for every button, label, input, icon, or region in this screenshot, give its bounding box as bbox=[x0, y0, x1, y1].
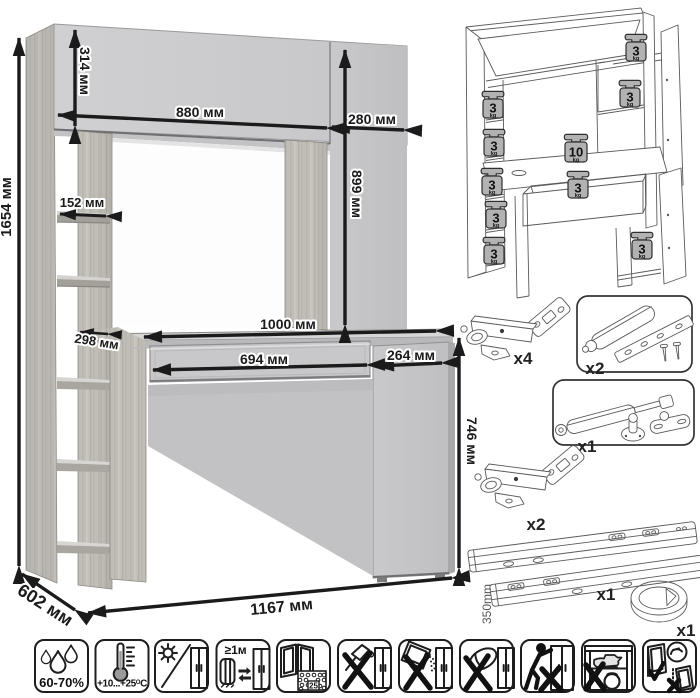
svg-text:≥1м: ≥1м bbox=[225, 643, 247, 657]
svg-text:1000 мм: 1000 мм bbox=[260, 316, 316, 332]
svg-text:1654 мм: 1654 мм bbox=[0, 177, 15, 237]
svg-text:152 мм: 152 мм bbox=[60, 195, 105, 210]
svg-text:25: 25 bbox=[309, 682, 318, 691]
svg-text:694 мм: 694 мм bbox=[240, 351, 288, 367]
svg-text:+10...+25OC: +10...+25OC bbox=[97, 679, 147, 690]
svg-text:x1: x1 bbox=[597, 585, 616, 604]
svg-text:880 мм: 880 мм bbox=[176, 104, 224, 120]
svg-text:899 мм: 899 мм bbox=[349, 170, 365, 218]
svg-text:314 мм: 314 мм bbox=[77, 47, 93, 95]
svg-text:350mm: 350mm bbox=[480, 584, 494, 624]
svg-text:x1: x1 bbox=[677, 621, 696, 640]
svg-text:264 мм: 264 мм bbox=[387, 347, 435, 363]
svg-text:60-70%: 60-70% bbox=[39, 675, 84, 690]
svg-text:x2: x2 bbox=[586, 359, 605, 378]
svg-text:x2: x2 bbox=[527, 515, 546, 534]
svg-text:x4: x4 bbox=[514, 349, 533, 368]
svg-text:746 мм: 746 мм bbox=[464, 417, 480, 465]
svg-text:280 мм: 280 мм bbox=[348, 111, 396, 127]
